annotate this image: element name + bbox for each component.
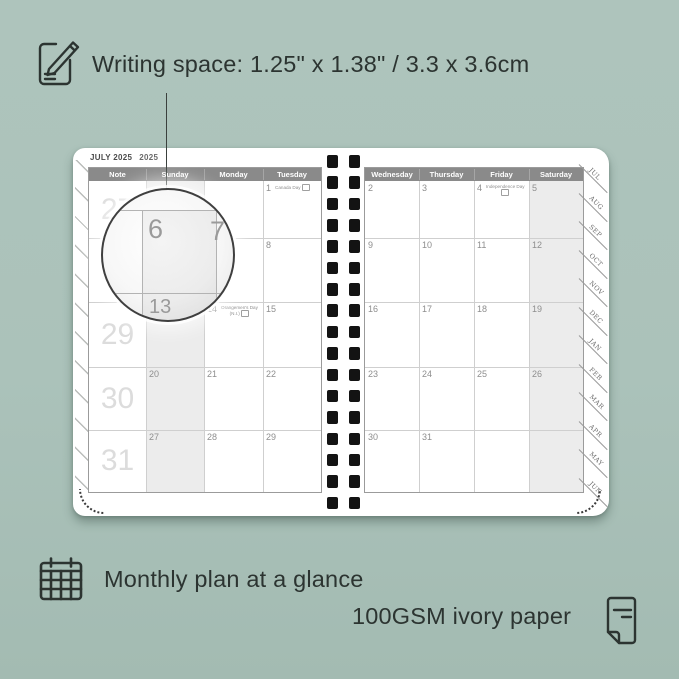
month-tab: MAY xyxy=(582,447,609,476)
magnifier-circle: 6 7 13 xyxy=(101,188,235,322)
writing-space-text: Writing space: 1.25" x 1.38" / 3.3 x 3.6… xyxy=(92,51,529,78)
spiral-hole xyxy=(349,390,360,403)
spiral-hole xyxy=(327,155,338,168)
magnifier-gridline xyxy=(142,210,143,320)
month-tab: NOV xyxy=(582,276,609,305)
spiral-hole xyxy=(327,454,338,467)
pencil-note-icon xyxy=(36,36,84,93)
spiral-hole xyxy=(327,497,338,510)
spiral-hole xyxy=(327,283,338,296)
spiral-hole xyxy=(349,347,360,360)
month-tab-label: FEB xyxy=(587,365,603,381)
spiral-hole xyxy=(349,326,360,339)
month-tab-label: MAR xyxy=(588,393,606,411)
monthly-plan-text: Monthly plan at a glance xyxy=(104,566,364,593)
spiral-hole xyxy=(349,369,360,382)
spiral-hole xyxy=(349,454,360,467)
spiral-hole xyxy=(349,304,360,317)
spiral-hole xyxy=(327,240,338,253)
product-image: Writing space: 1.25" x 1.38" / 3.3 x 3.6… xyxy=(0,0,679,679)
paper-sheet-icon xyxy=(599,594,643,653)
month-tab: DEC xyxy=(582,305,609,334)
spiral-hole xyxy=(327,304,338,317)
month-tab: FEB xyxy=(582,362,609,391)
month-tab: AUG xyxy=(582,191,609,220)
spiral-hole xyxy=(349,283,360,296)
dotted-corner-right xyxy=(576,489,602,515)
spiral-hole xyxy=(327,262,338,275)
month-tab: JAN xyxy=(582,333,609,362)
magnifier-gridline xyxy=(103,210,233,211)
month-tab-label: APR xyxy=(587,422,603,438)
callout-connector-line xyxy=(166,93,168,192)
paper-text: 100GSM ivory paper xyxy=(352,603,571,630)
month-tab: OCT xyxy=(582,248,609,277)
spiral-hole xyxy=(327,198,338,211)
spiral-hole xyxy=(349,433,360,446)
month-tab-label: NOV xyxy=(588,279,606,297)
spiral-hole xyxy=(349,176,360,189)
spiral-hole xyxy=(349,155,360,168)
month-tab: SEP xyxy=(582,219,609,248)
spiral-hole xyxy=(327,347,338,360)
month-tab: APR xyxy=(582,419,609,448)
month-tab-label: MAY xyxy=(588,450,605,467)
spiral-hole xyxy=(327,475,338,488)
magnified-day-number: 7 xyxy=(210,216,225,247)
spiral-hole xyxy=(327,369,338,382)
spiral-hole xyxy=(349,198,360,211)
spiral-hole xyxy=(327,411,338,424)
magnifier-view: 6 7 13 xyxy=(103,190,233,320)
spiral-hole xyxy=(327,176,338,189)
calendar-grid-icon xyxy=(38,556,84,607)
spiral-hole xyxy=(349,240,360,253)
magnifier-gridline xyxy=(103,293,233,294)
month-tab-label: AUG xyxy=(588,194,605,211)
spiral-hole xyxy=(327,433,338,446)
spiral-hole xyxy=(327,390,338,403)
month-tab-label: JAN xyxy=(587,337,603,353)
month-tab-label: SEP xyxy=(587,223,603,239)
dotted-corner-left xyxy=(79,489,105,515)
month-tab-label: DEC xyxy=(588,308,605,325)
month-tabs: JULAUGSEPOCTNOVDECJANFEBMARAPRMAYJUN xyxy=(582,162,609,504)
spiral-hole xyxy=(349,219,360,232)
magnified-day-number: 6 xyxy=(148,214,163,245)
spiral-hole xyxy=(327,326,338,339)
magnified-day-number: 13 xyxy=(149,296,171,319)
month-tab-label: OCT xyxy=(587,251,604,268)
month-tab: MAR xyxy=(582,390,609,419)
spiral-hole xyxy=(349,475,360,488)
month-tab: JUL xyxy=(582,162,609,191)
spiral-hole xyxy=(349,411,360,424)
month-tab-label: JUL xyxy=(587,166,602,181)
spiral-hole xyxy=(349,262,360,275)
spiral-hole xyxy=(349,497,360,510)
spiral-hole xyxy=(327,219,338,232)
